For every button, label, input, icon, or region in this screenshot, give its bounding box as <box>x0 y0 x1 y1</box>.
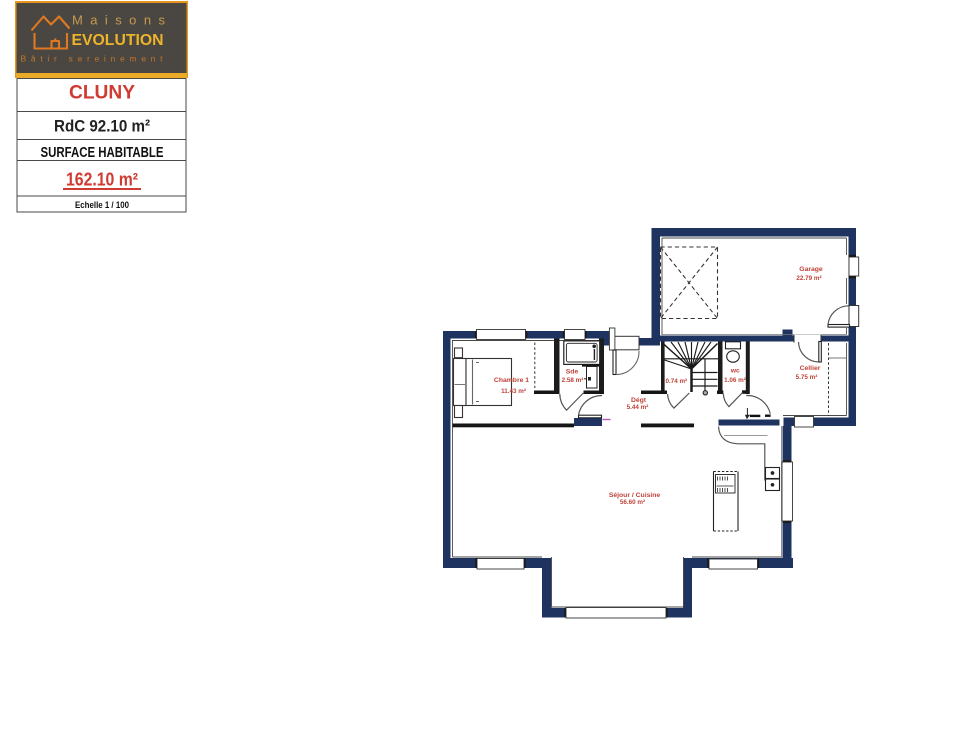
svg-text:5.75 m²: 5.75 m² <box>796 374 818 381</box>
svg-text:5.44 m²: 5.44 m² <box>627 404 649 411</box>
svg-text:2.58 m²: 2.58 m² <box>562 377 584 384</box>
svg-text:162.10 m²: 162.10 m² <box>66 170 138 190</box>
svg-text:Cellier: Cellier <box>800 365 821 372</box>
svg-text:wc: wc <box>730 368 740 375</box>
svg-text:22.79 m²: 22.79 m² <box>796 275 821 282</box>
svg-text:Garage: Garage <box>799 266 823 273</box>
svg-text:Séjour / Cuisine: Séjour / Cuisine <box>609 492 661 499</box>
svg-text:11.43 m²: 11.43 m² <box>501 388 526 395</box>
svg-text:56.60 m²: 56.60 m² <box>620 499 645 506</box>
svg-text:Chambre 1: Chambre 1 <box>494 377 529 384</box>
svg-text:Echelle 1 / 100: Echelle 1 / 100 <box>75 200 129 210</box>
svg-text:SURFACE HABITABLE: SURFACE HABITABLE <box>41 145 164 161</box>
svg-text:RdC 92.10 m²: RdC 92.10 m² <box>54 118 150 136</box>
svg-text:1.06 m²: 1.06 m² <box>724 377 746 384</box>
svg-text:Sde: Sde <box>566 369 579 376</box>
svg-text:0.74 m²: 0.74 m² <box>665 378 687 385</box>
svg-text:EVOLUTION: EVOLUTION <box>72 32 164 49</box>
svg-text:CLUNY: CLUNY <box>69 83 135 104</box>
